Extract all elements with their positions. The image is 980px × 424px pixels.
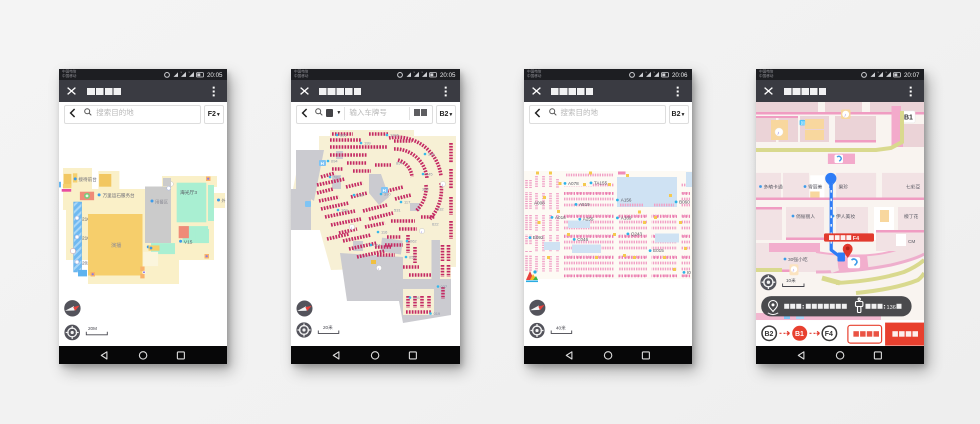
- svg-text:♪: ♪: [792, 268, 794, 273]
- svg-text:20:06: 20:06: [672, 72, 688, 79]
- svg-text:七彩豆: 七彩豆: [906, 184, 921, 191]
- svg-text:³: ³: [413, 70, 415, 74]
- svg-text:A008: A008: [533, 201, 544, 206]
- svg-text:116: 116: [381, 230, 388, 235]
- svg-text:20M: 20M: [88, 326, 97, 331]
- svg-text:789: 789: [333, 175, 340, 180]
- svg-text:338: 338: [422, 187, 429, 192]
- svg-text:B1: B1: [904, 115, 913, 122]
- svg-text:用餐区: 用餐区: [155, 199, 169, 206]
- svg-text:多萌卡通: 多萌卡通: [764, 184, 783, 191]
- svg-text:345: 345: [426, 172, 433, 177]
- svg-text:806: 806: [340, 133, 347, 138]
- svg-text:万里运石服务台: 万里运石服务台: [103, 192, 135, 199]
- svg-text:117: 117: [404, 200, 411, 205]
- svg-text:20:05: 20:05: [440, 72, 456, 79]
- svg-text:A255: A255: [582, 217, 593, 222]
- svg-text:332: 332: [437, 207, 444, 212]
- svg-text:390: 390: [384, 192, 391, 197]
- svg-text:³: ³: [878, 70, 880, 74]
- svg-text:³: ³: [421, 70, 423, 74]
- svg-text:A519: A519: [578, 202, 589, 207]
- svg-text:531: 531: [394, 208, 401, 213]
- svg-text:F4: F4: [853, 236, 859, 242]
- svg-text:136: 136: [887, 305, 896, 311]
- svg-text:A169: A169: [620, 216, 631, 221]
- svg-text:H: H: [321, 161, 324, 166]
- svg-text:199: 199: [364, 141, 371, 146]
- svg-text:E092: E092: [532, 236, 543, 241]
- svg-text:E015: E015: [653, 249, 664, 254]
- svg-text:20米: 20米: [323, 324, 333, 331]
- svg-text:1306: 1306: [390, 133, 400, 138]
- svg-text:♪: ♪: [442, 183, 444, 187]
- svg-text:A156: A156: [620, 198, 631, 203]
- svg-text:♪: ♪: [351, 226, 353, 230]
- svg-text:³: ³: [886, 70, 888, 74]
- svg-text:檬丁花: 檬丁花: [904, 213, 919, 220]
- svg-text:♪: ♪: [421, 230, 423, 234]
- svg-text:F4: F4: [825, 331, 833, 338]
- svg-text:果珍: 果珍: [839, 184, 849, 191]
- svg-text:伊人美妆: 伊人美妆: [836, 213, 855, 220]
- svg-text:B2: B2: [765, 331, 774, 338]
- svg-text:139: 139: [357, 193, 364, 198]
- svg-text:海光厅3: 海光厅3: [180, 189, 197, 196]
- svg-text:20:07: 20:07: [904, 72, 920, 79]
- svg-text:094: 094: [331, 159, 338, 164]
- svg-text:V15: V15: [184, 240, 193, 246]
- svg-text:028: 028: [413, 295, 420, 300]
- svg-text:A016: A016: [554, 215, 565, 220]
- svg-text:³: ³: [189, 70, 191, 74]
- svg-text:³: ³: [645, 70, 647, 74]
- svg-text:♪: ♪: [378, 267, 380, 271]
- svg-text:雪丽美: 雪丽美: [808, 184, 823, 191]
- svg-text:062: 062: [410, 239, 417, 244]
- svg-text:Q243: Q243: [630, 232, 642, 237]
- svg-text:TA155: TA155: [593, 181, 607, 186]
- svg-text:I0: I0: [686, 270, 690, 275]
- svg-text:019: 019: [434, 311, 441, 316]
- svg-text:接待前台: 接待前台: [79, 176, 98, 183]
- svg-text:037: 037: [441, 284, 448, 289]
- svg-text:回: 回: [801, 120, 805, 125]
- svg-text:622: 622: [432, 222, 439, 227]
- svg-text:³: ³: [653, 70, 655, 74]
- svg-text:854: 854: [396, 161, 403, 166]
- svg-text:演播: 演播: [111, 241, 122, 249]
- svg-text:俏俪丽人: 俏俪丽人: [796, 213, 815, 220]
- svg-text:053: 053: [409, 255, 416, 260]
- svg-text:10米: 10米: [786, 277, 796, 284]
- svg-text:30强小吃: 30强小吃: [788, 256, 808, 263]
- svg-text:104: 104: [374, 243, 381, 248]
- svg-text:B1: B1: [795, 331, 804, 338]
- svg-text:C046: C046: [577, 237, 588, 242]
- svg-text:♪: ♪: [844, 112, 846, 117]
- svg-text:外: 外: [222, 197, 226, 203]
- svg-text:316: 316: [428, 152, 435, 157]
- svg-text:168: 168: [341, 208, 348, 213]
- svg-text:CM: CM: [908, 239, 915, 245]
- svg-text:20:05: 20:05: [207, 72, 223, 79]
- svg-text:40米: 40米: [555, 325, 565, 332]
- svg-text:B060: B060: [679, 200, 690, 205]
- svg-text:A078: A078: [567, 181, 578, 186]
- svg-text:³: ³: [181, 70, 183, 74]
